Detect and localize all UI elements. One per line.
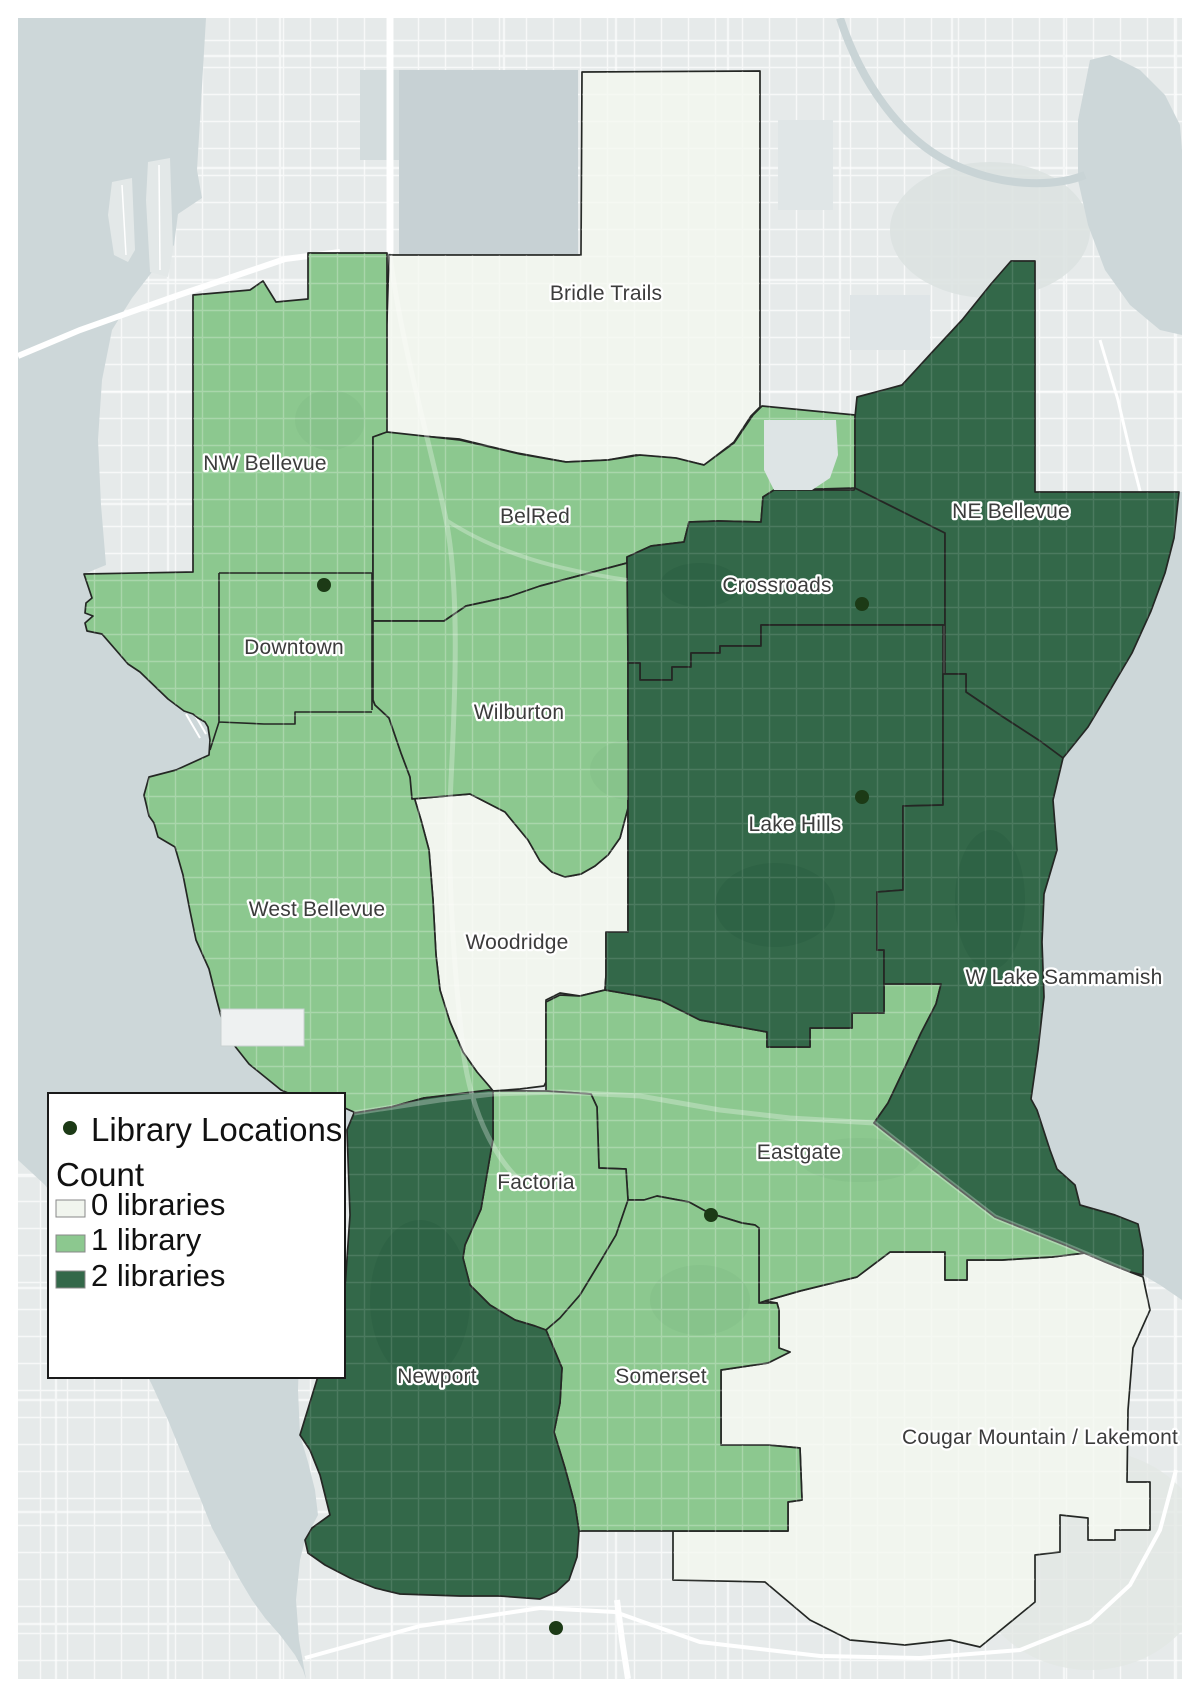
svg-text:Woodridge: Woodridge	[466, 931, 569, 954]
svg-text:Wilburton: Wilburton	[474, 701, 565, 724]
svg-text:0 libraries: 0 libraries	[91, 1187, 225, 1222]
svg-text:NE Bellevue: NE Bellevue	[952, 500, 1070, 523]
svg-text:Eastgate: Eastgate	[757, 1141, 842, 1164]
svg-text:Factoria: Factoria	[497, 1171, 575, 1194]
svg-text:NW Bellevue: NW Bellevue	[203, 452, 327, 475]
svg-text:Crossroads: Crossroads	[722, 574, 831, 597]
svg-text:Downtown: Downtown	[244, 636, 344, 659]
svg-text:2 libraries: 2 libraries	[91, 1258, 225, 1293]
svg-text:Somerset: Somerset	[615, 1365, 706, 1388]
svg-text:1 library: 1 library	[91, 1222, 202, 1257]
svg-text:Bridle Trails: Bridle Trails	[550, 282, 662, 305]
svg-text:West Bellevue: West Bellevue	[249, 898, 385, 921]
svg-text:Library Locations: Library Locations	[91, 1111, 342, 1148]
svg-text:W Lake Sammamish: W Lake Sammamish	[966, 966, 1163, 989]
svg-text:BelRed: BelRed	[500, 505, 570, 528]
svg-text:Lake Hills: Lake Hills	[748, 813, 841, 836]
svg-text:Newport: Newport	[397, 1365, 477, 1388]
svg-text:Cougar Mountain / Lakemont: Cougar Mountain / Lakemont	[902, 1426, 1178, 1449]
